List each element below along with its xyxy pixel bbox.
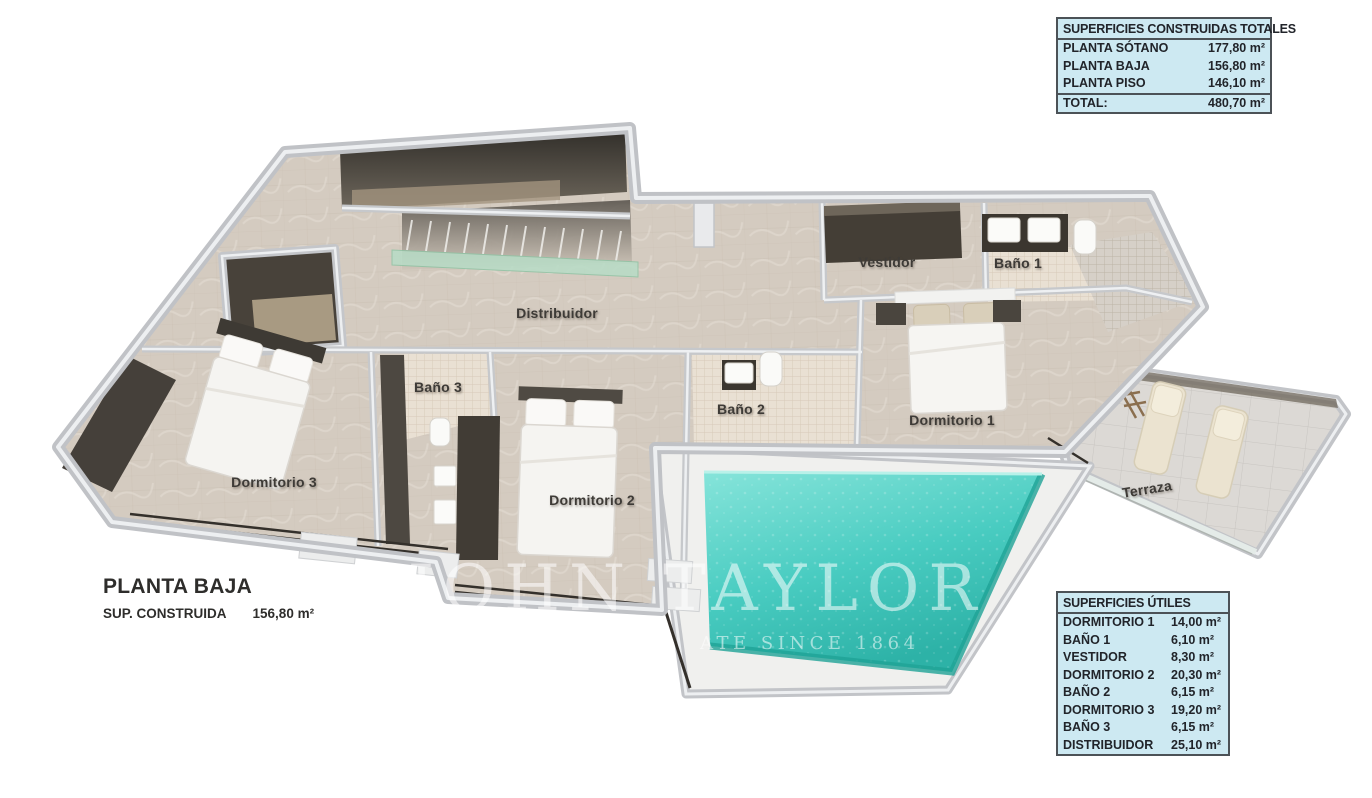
table-row: DORMITORIO 3 19,20 m² [1058, 702, 1228, 720]
toilet [430, 418, 450, 446]
page-title: PLANTA BAJA [103, 575, 314, 599]
nightstand [876, 303, 906, 325]
built-area-value: 156,80 m² [253, 606, 315, 621]
table-row: VESTIDOR 8,30 m² [1058, 649, 1228, 667]
built-areas-header: SUPERFICIES CONSTRUIDAS TOTALES [1058, 19, 1270, 40]
table-row: BAÑO 3 6,15 m² [1058, 719, 1228, 737]
watermark-tagline: ATE SINCE 1864 [700, 633, 920, 654]
floorplan-page: Distribuidor Vestidor Baño 1 Baño 2 Baño… [0, 0, 1372, 798]
room-label-bano2: Baño 2 [717, 401, 765, 417]
wardrobe-dorm2 [456, 416, 500, 560]
built-area-label: SUP. CONSTRUIDA [103, 606, 227, 621]
table-row: DORMITORIO 1 14,00 m² [1058, 614, 1228, 632]
watermark-brand: JOHN TAYLOR [408, 552, 986, 626]
room-label-bano1: Baño 1 [994, 255, 1042, 271]
table-row: DORMITORIO 2 20,30 m² [1058, 667, 1228, 685]
toilet [760, 352, 782, 386]
table-row: PLANTA PISO 146,10 m² [1058, 75, 1270, 93]
room-label-distribuidor: Distribuidor [516, 305, 598, 321]
room-label-dormitorio3: Dormitorio 3 [231, 474, 317, 490]
table-row: PLANTA BAJA 156,80 m² [1058, 58, 1270, 76]
table-row: DISTRIBUIDOR 25,10 m² [1058, 737, 1228, 755]
room-label-vestidor: Vestidor [859, 254, 916, 270]
table-row: PLANTA SÓTANO 177,80 m² [1058, 40, 1270, 58]
room-label-bano3: Baño 3 [414, 379, 462, 395]
door-pillar [694, 203, 714, 247]
table-total-row: TOTAL: 480,70 m² [1058, 93, 1270, 113]
room-label-dormitorio2: Dormitorio 2 [549, 492, 635, 508]
table-row: BAÑO 2 6,15 m² [1058, 684, 1228, 702]
title-block: PLANTA BAJA SUP. CONSTRUIDA 156,80 m² [103, 575, 314, 621]
table-row: BAÑO 1 6,10 m² [1058, 632, 1228, 650]
useful-areas-header: SUPERFICIES ÚTILES [1058, 593, 1228, 614]
built-areas-table: SUPERFICIES CONSTRUIDAS TOTALES PLANTA S… [1056, 17, 1272, 114]
nightstand [993, 300, 1021, 322]
useful-areas-table: SUPERFICIES ÚTILES DORMITORIO 1 14,00 m²… [1056, 591, 1230, 756]
room-label-dormitorio1: Dormitorio 1 [909, 412, 995, 428]
toilet [1074, 220, 1096, 254]
